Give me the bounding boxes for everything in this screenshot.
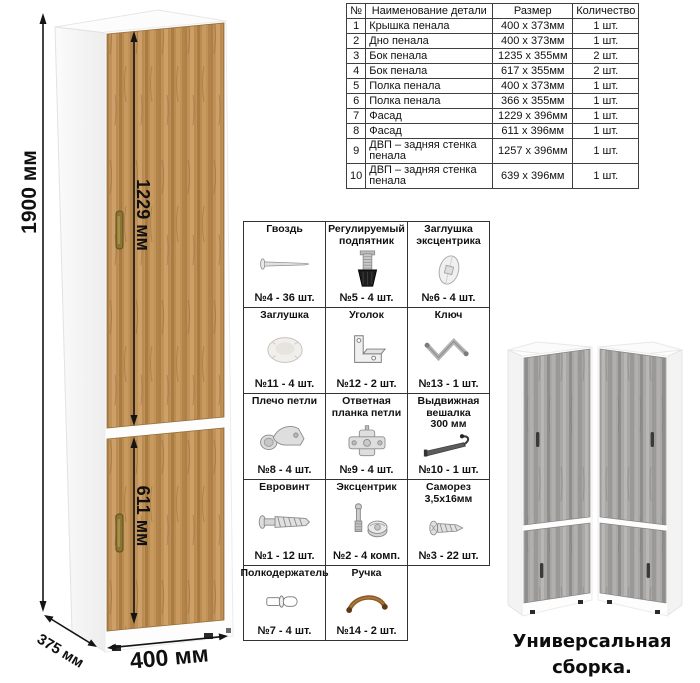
- hardware-name: Выдвижная вешалка 300 мм: [408, 394, 489, 431]
- variant-cabinets-drawing: [490, 337, 700, 633]
- col-header-name: Наименование детали: [366, 4, 493, 19]
- cabinet-side-panel: [55, 27, 106, 652]
- hardware-cell: Регулируемый подпятник №5 - 4 шт.: [326, 222, 408, 308]
- part-size: 400 x 373мм: [493, 19, 573, 34]
- hardware-name: Заглушка эксцентрика: [408, 222, 489, 247]
- part-name: Бок пенала: [366, 49, 493, 64]
- cap-icon: [250, 330, 320, 370]
- hinge-plate-icon: [332, 424, 402, 460]
- hardware-cell: Заглушка №11 - 4 шт.: [244, 308, 326, 394]
- lower-door: [107, 428, 224, 631]
- col-header-qty: Количество: [573, 4, 639, 19]
- part-number: 6: [347, 94, 366, 109]
- hardware-qty: №11 - 4 шт.: [255, 378, 315, 393]
- part-qty: 1 шт.: [573, 109, 639, 124]
- assembly-sheet: 1900 мм 1229 мм 611 мм 375 мм 400 мм: [0, 0, 700, 683]
- part-qty: 1 шт.: [573, 94, 639, 109]
- hardware-qty: №4 - 36 шт.: [254, 292, 314, 307]
- hardware-grid: Гвоздь №4 - 36 шт. Регулируемый подпятни…: [243, 221, 490, 641]
- hardware-cell: Заглушка эксцентрика №6 - 4 шт.: [408, 222, 490, 308]
- height-dimension-arrow: [40, 13, 47, 612]
- self-tapping-screw-icon: [414, 511, 484, 545]
- part-number: 10: [347, 164, 366, 189]
- part-size: 400 x 373мм: [493, 79, 573, 94]
- part-number: 3: [347, 49, 366, 64]
- caption: Универсальная сборка.: [486, 629, 698, 681]
- hardware-qty: №8 - 4 шт.: [258, 464, 312, 479]
- part-number: 8: [347, 124, 366, 139]
- part-number: 9: [347, 139, 366, 164]
- col-header-number: №: [347, 4, 366, 19]
- lower-door-handle: [116, 514, 123, 552]
- euro-screw-icon: [250, 503, 320, 541]
- lower-door-dimension-label: 611 мм: [133, 486, 153, 547]
- hardware-qty: №10 - 1 шт.: [418, 464, 478, 479]
- hardware-name: Гвоздь: [265, 222, 304, 236]
- part-name: ДВП – задняя стенка пенала: [366, 164, 493, 189]
- upper-door-handle: [116, 211, 123, 249]
- hardware-name: Эксцентрик: [335, 480, 397, 494]
- part-size: 1257 x 396мм: [493, 139, 573, 164]
- part-name: ДВП – задняя стенка пенала: [366, 139, 493, 164]
- hardware-name: Ключ: [434, 308, 464, 322]
- hardware-cell: Евровинт №1 - 12 шт.: [244, 480, 326, 566]
- hardware-cell: Ключ №13 - 1 шт.: [408, 308, 490, 394]
- hardware-name: Уголок: [348, 308, 385, 322]
- part-qty: 2 шт.: [573, 64, 639, 79]
- hardware-qty: №6 - 4 шт.: [422, 292, 476, 307]
- hardware-cell: Плечо петли №8 - 4 шт.: [244, 394, 326, 480]
- part-name: Фасад: [366, 124, 493, 139]
- table-row: 7 Фасад 1229 x 396мм 1 шт.: [347, 109, 639, 124]
- hardware-cell: Выдвижная вешалка 300 мм №10 - 1 шт.: [408, 394, 490, 480]
- part-qty: 2 шт.: [573, 49, 639, 64]
- part-size: 1229 x 396мм: [493, 109, 573, 124]
- part-number: 4: [347, 64, 366, 79]
- variant-upper-door: [524, 349, 590, 525]
- hardware-qty: №13 - 1 шт.: [418, 378, 478, 393]
- hardware-name: Ручка: [350, 566, 382, 580]
- table-row: 6 Полка пенала 366 x 355мм 1 шт.: [347, 94, 639, 109]
- part-size: 1235 x 355мм: [493, 49, 573, 64]
- table-row: 8 Фасад 611 x 396мм 1 шт.: [347, 124, 639, 139]
- hardware-qty: №5 - 4 шт.: [340, 292, 394, 307]
- hardware-cell: Полкодержатель №7 - 4 шт.: [244, 566, 326, 641]
- cam-cap-icon: [414, 250, 484, 290]
- part-name: Полка пенала: [366, 94, 493, 109]
- parts-table-header-row: № Наименование детали Размер Количество: [347, 4, 639, 19]
- adjustable-foot-icon: [332, 250, 402, 290]
- hinge-arm-icon: [250, 417, 320, 455]
- height-dimension-label: 1900 мм: [18, 150, 41, 234]
- hardware-qty: №12 - 2 шт.: [336, 378, 396, 393]
- table-row: 1 Крышка пенала 400 x 373мм 1 шт.: [347, 19, 639, 34]
- hardware-name: Саморез 3,5x16мм: [408, 480, 489, 505]
- part-qty: 1 шт.: [573, 34, 639, 49]
- table-row: 9 ДВП – задняя стенка пенала 1257 x 396м…: [347, 139, 639, 164]
- hardware-qty: №14 - 2 шт.: [336, 625, 396, 640]
- part-size: 400 x 373мм: [493, 34, 573, 49]
- part-size: 611 x 396мм: [493, 124, 573, 139]
- part-qty: 1 шт.: [573, 79, 639, 94]
- hardware-name: Ответная планка петли: [326, 394, 407, 419]
- variant-door-handle: [536, 432, 539, 447]
- part-size: 366 x 355мм: [493, 94, 573, 109]
- table-row: 2 Дно пенала 400 x 373мм 1 шт.: [347, 34, 639, 49]
- part-name: Фасад: [366, 109, 493, 124]
- hardware-qty: №1 - 12 шт.: [254, 550, 314, 565]
- variant-cabinet: [508, 342, 592, 616]
- hardware-name: Полкодержатель: [239, 566, 329, 580]
- nail-icon: [250, 246, 320, 282]
- hardware-qty: №3 - 22 шт.: [418, 550, 478, 565]
- handle-icon: [332, 585, 402, 619]
- table-row: 5 Полка пенала 400 x 373мм 1 шт.: [347, 79, 639, 94]
- part-size: 617 x 355мм: [493, 64, 573, 79]
- pullout-hanger-icon: [414, 434, 484, 460]
- hardware-name: Евровинт: [258, 480, 311, 494]
- part-name: Полка пенала: [366, 79, 493, 94]
- corner-bracket-icon: [332, 330, 402, 370]
- hardware-name: Заглушка: [259, 308, 310, 322]
- part-qty: 1 шт.: [573, 164, 639, 189]
- hardware-qty: №2 - 4 комп.: [333, 550, 400, 565]
- part-size: 639 x 396мм: [493, 164, 573, 189]
- hardware-cell: Гвоздь №4 - 36 шт.: [244, 222, 326, 308]
- part-name: Бок пенала: [366, 64, 493, 79]
- shelf-pin-icon: [250, 589, 320, 615]
- variant-door-handle: [540, 563, 543, 578]
- parts-table: № Наименование детали Размер Количество …: [346, 3, 639, 189]
- hardware-name: Регулируемый подпятник: [326, 222, 407, 247]
- hardware-qty: №9 - 4 шт.: [340, 464, 394, 479]
- part-number: 2: [347, 34, 366, 49]
- hardware-name: Плечо петли: [251, 394, 318, 408]
- hardware-cell: Эксцентрик №2 - 4 комп.: [326, 480, 408, 566]
- cam-lock-icon: [332, 502, 402, 542]
- part-number: 1: [347, 19, 366, 34]
- part-number: 7: [347, 109, 366, 124]
- part-qty: 1 шт.: [573, 19, 639, 34]
- table-row: 10 ДВП – задняя стенка пенала 639 x 396м…: [347, 164, 639, 189]
- empty-cell: [408, 566, 490, 641]
- hardware-cell: Ручка №14 - 2 шт.: [326, 566, 408, 641]
- part-name: Дно пенала: [366, 34, 493, 49]
- hardware-cell: Саморез 3,5x16мм №3 - 22 шт.: [408, 480, 490, 566]
- hardware-cell: Уголок №12 - 2 шт.: [326, 308, 408, 394]
- part-number: 5: [347, 79, 366, 94]
- hex-key-icon: [414, 330, 484, 370]
- main-cabinet-drawing: 1900 мм 1229 мм 611 мм 375 мм 400 мм: [0, 0, 240, 683]
- table-row: 3 Бок пенала 1235 x 355мм 2 шт.: [347, 49, 639, 64]
- hardware-cell: Ответная планка петли №9 - 4 шт.: [326, 394, 408, 480]
- col-header-size: Размер: [493, 4, 573, 19]
- table-row: 4 Бок пенала 617 x 355мм 2 шт.: [347, 64, 639, 79]
- hardware-qty: №7 - 4 шт.: [258, 625, 312, 640]
- upper-door: [107, 23, 224, 428]
- variant-lower-door: [524, 523, 590, 603]
- part-qty: 1 шт.: [573, 139, 639, 164]
- part-qty: 1 шт.: [573, 124, 639, 139]
- part-name: Крышка пенала: [366, 19, 493, 34]
- upper-door-dimension-label: 1229 мм: [133, 179, 153, 251]
